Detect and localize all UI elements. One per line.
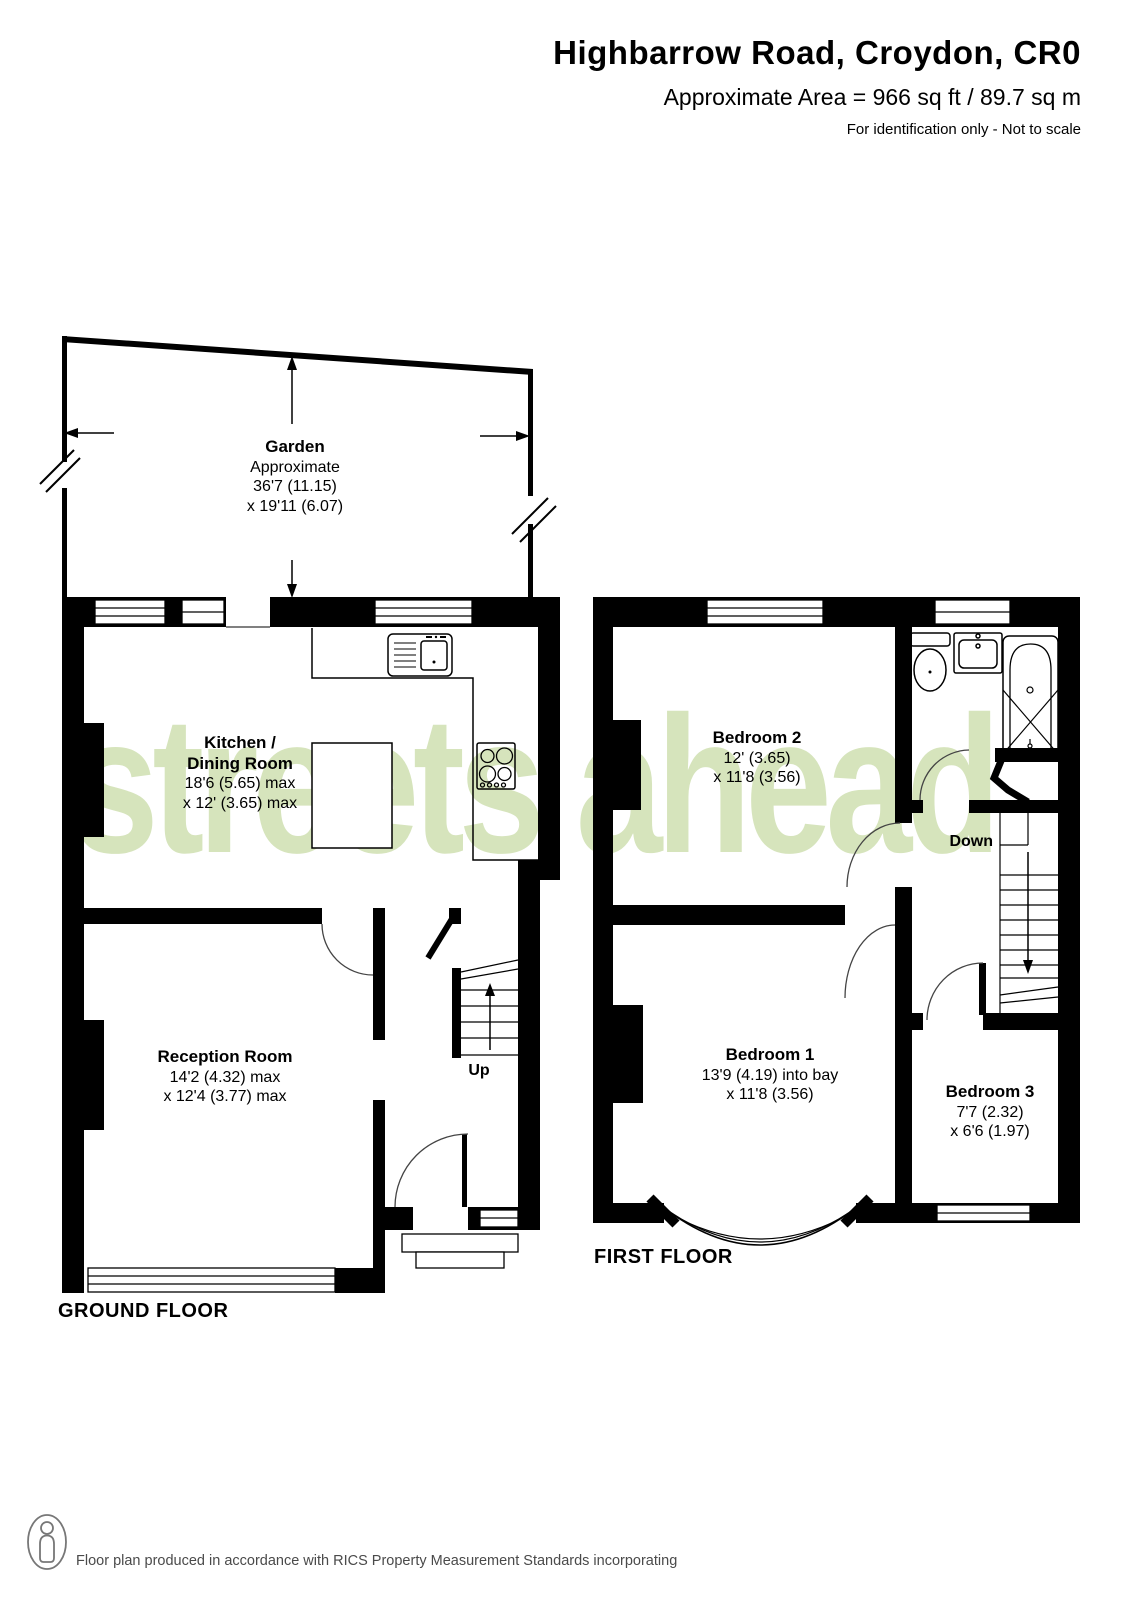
sink-icon [954,633,1002,673]
garden-note: Approximate [170,458,420,478]
footer: Floor plan produced in accordance with R… [76,1504,677,1599]
bedroom1-dim1: 13'9 (4.19) into bay [640,1066,900,1086]
garden-dim1: 36'7 (11.15) [170,477,420,497]
kitchen-dim1: 18'6 (5.65) max [115,774,365,794]
first-floor-label: FIRST FLOOR [594,1246,733,1269]
bay-window [650,1198,870,1245]
ground-stairs [428,908,518,1058]
kitchen-name1: Kitchen / [115,733,365,754]
kitchen-dim2: x 12' (3.65) max [115,794,365,814]
ground-floor-label: GROUND FLOOR [58,1300,228,1323]
bedroom2-name: Bedroom 2 [632,728,882,749]
bedroom1-label: Bedroom 1 13'9 (4.19) into bay x 11'8 (3… [640,1045,900,1105]
ground-floor-windows [88,594,518,1292]
bedroom2-dim1: 12' (3.65) [632,749,882,769]
bedroom1-dim2: x 11'8 (3.56) [640,1085,900,1105]
garden-label: Garden Approximate 36'7 (11.15) x 19'11 … [170,437,420,516]
bedroom3-name: Bedroom 3 [905,1082,1075,1103]
floorplan-page: Highbarrow Road, Croydon, CR0 Approximat… [0,0,1131,1599]
kitchen-label: Kitchen / Dining Room 18'6 (5.65) max x … [115,733,365,814]
stairs-down-label: Down [920,833,993,851]
bedroom2-dim2: x 11'8 (3.56) [632,768,882,788]
front-door [395,1134,468,1207]
page-title: Highbarrow Road, Croydon, CR0 [553,34,1081,72]
porch-steps [402,1234,518,1268]
bedroom2-label: Bedroom 2 12' (3.65) x 11'8 (3.56) [632,728,882,788]
disclaimer: For identification only - Not to scale [553,121,1081,138]
reception-name: Reception Room [100,1047,350,1068]
stairs-up-label: Up [459,1062,499,1080]
reception-label: Reception Room 14'2 (4.32) max x 12'4 (3… [100,1047,350,1107]
ground-floor-walls [62,597,560,1293]
bathroom-door-arc [920,750,969,800]
toilet-icon [910,633,950,691]
bedroom3-dim2: x 6'6 (1.97) [905,1122,1075,1142]
hob-icon [477,743,515,789]
footer-line1: Floor plan produced in accordance with R… [76,1550,677,1573]
bedroom1-name: Bedroom 1 [640,1045,900,1066]
bathroom-wall-jog [994,756,1028,802]
person-icon [26,1514,68,1572]
bedroom2-door-arc [847,823,900,887]
kitchen-door-arc [322,924,373,975]
garden-name: Garden [170,437,420,458]
approximate-area: Approximate Area = 966 sq ft / 89.7 sq m [553,84,1081,111]
garden-dim2: x 19'11 (6.07) [170,497,420,517]
bath-icon [1003,636,1058,756]
bedroom3-door-arc [927,963,983,1020]
kitchen-name2: Dining Room [115,754,365,775]
first-stairs [1000,813,1058,1013]
kitchen-sink-icon [388,634,452,676]
bedroom3-dim1: 7'7 (2.32) [905,1103,1075,1123]
bedroom1-door-arc [845,925,895,998]
reception-dim2: x 12'4 (3.77) max [100,1087,350,1107]
reception-dim1: 14'2 (4.32) max [100,1068,350,1088]
bedroom3-label: Bedroom 3 7'7 (2.32) x 6'6 (1.97) [905,1082,1075,1142]
header: Highbarrow Road, Croydon, CR0 Approximat… [553,34,1081,138]
